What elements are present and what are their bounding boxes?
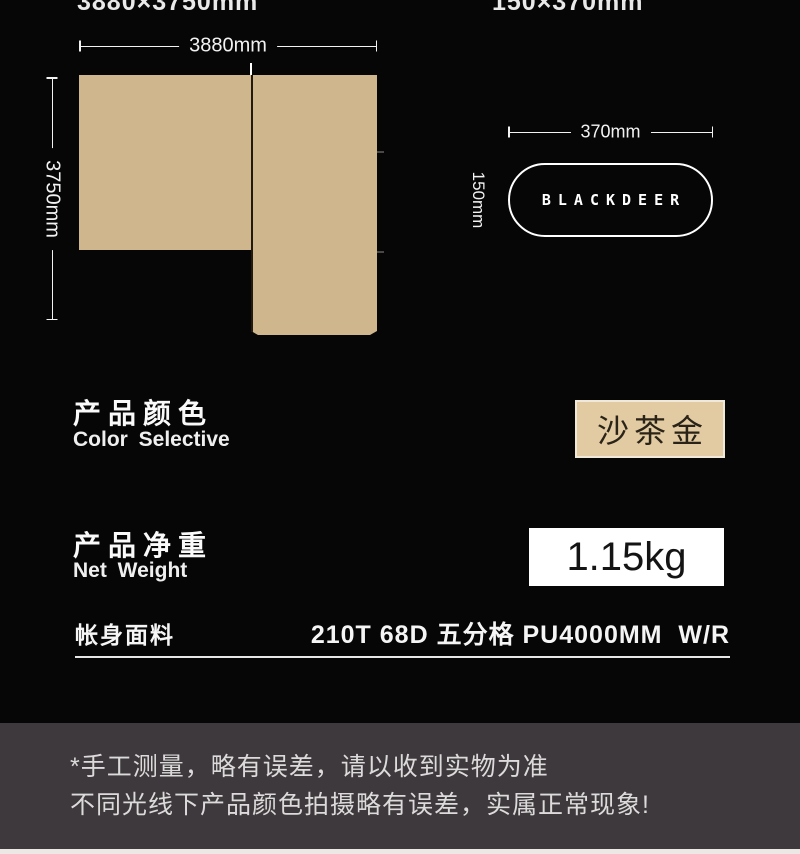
color-section-title-en: Color Selective	[73, 428, 230, 452]
net-weight-box: 1.15kg	[529, 528, 724, 586]
tarp-width-dimension: 3880mm	[79, 36, 377, 56]
product-spec-page: 3880×3750mm 150×370mm 3880mm 3750mm 370m…	[0, 0, 800, 854]
net-weight-value: 1.15kg	[566, 535, 686, 580]
weight-section-title-zh: 产品净重	[73, 524, 213, 564]
color-section-title-zh: 产品颜色	[73, 392, 213, 432]
bag-height-label: 150mm	[468, 160, 488, 241]
disclaimer-line-2: 不同光线下产品颜色拍摄略有误差，实属正常现象!	[70, 790, 780, 821]
dimension-tick	[712, 127, 714, 138]
fabric-spec-value: 210T 68D 五分格 PU4000MM W/R	[311, 615, 730, 651]
seam-tick	[250, 63, 252, 75]
fabric-spec-row: 帐身面料 210T 68D 五分格 PU4000MM W/R	[75, 610, 730, 658]
dimension-tick	[47, 77, 58, 79]
dimension-tick	[79, 41, 81, 52]
tarp-panel-right	[251, 75, 377, 335]
disclaimer-line-1: *手工测量，略有误差，请以收到实物为准	[70, 752, 780, 783]
disclaimer-panel: *手工测量，略有误差，请以收到实物为准 不同光线下产品颜色拍摄略有误差，实属正常…	[0, 723, 800, 849]
storage-bag-outline: BLACKDEER	[508, 163, 713, 237]
dimension-tick	[376, 41, 378, 52]
tarp-height-label: 3750mm	[41, 148, 64, 250]
tarp-panel-left	[79, 75, 251, 250]
bag-size-caption: 150×370mm	[492, 0, 643, 17]
color-swatch: 沙茶金	[575, 400, 725, 458]
tarp-height-dimension: 3750mm	[42, 77, 62, 320]
bag-height-dimension: 150mm	[468, 163, 488, 237]
tarp-width-label: 3880mm	[179, 35, 277, 58]
blackdeer-logo-text: BLACKDEER	[535, 191, 686, 209]
bag-width-label: 370mm	[570, 122, 650, 143]
color-swatch-label: 沙茶金	[592, 406, 708, 452]
edge-tick	[377, 251, 384, 253]
bag-width-dimension: 370mm	[508, 122, 713, 142]
dimension-tick	[47, 319, 58, 321]
weight-section-title-en: Net Weight	[73, 559, 187, 583]
fabric-spec-label: 帐身面料	[75, 616, 175, 650]
dimension-tick	[508, 127, 510, 138]
tarp-size-caption: 3880×3750mm	[77, 0, 258, 17]
edge-tick	[377, 151, 384, 153]
page-bottom-strip	[0, 849, 800, 854]
